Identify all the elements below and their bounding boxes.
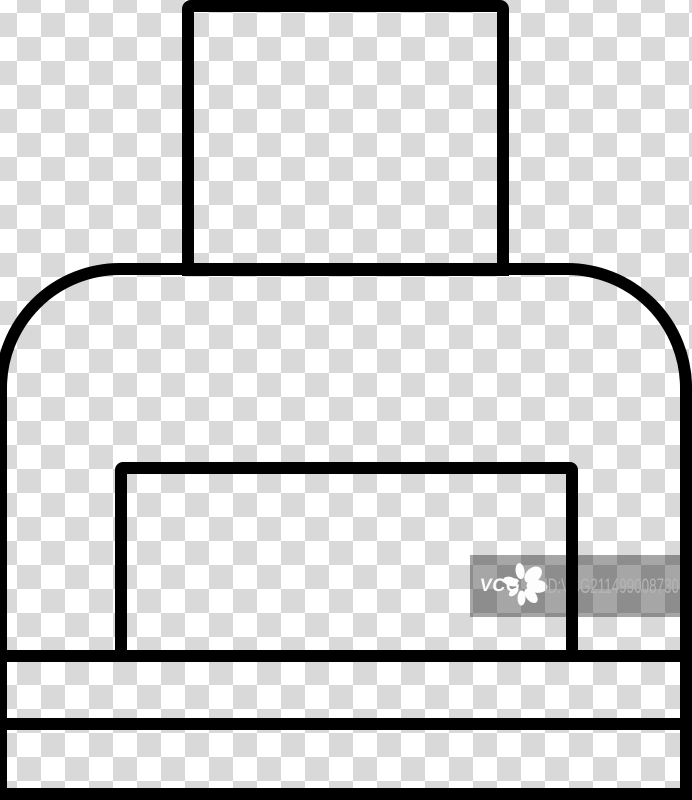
printer-detail-line-lower bbox=[0, 718, 692, 730]
icon-canvas: VCG ID:VCG211499008730 bbox=[0, 0, 692, 800]
printer-detail-line-upper bbox=[0, 650, 692, 662]
printer-output-tray-icon bbox=[115, 462, 578, 662]
printer-paper-icon bbox=[182, 0, 509, 276]
